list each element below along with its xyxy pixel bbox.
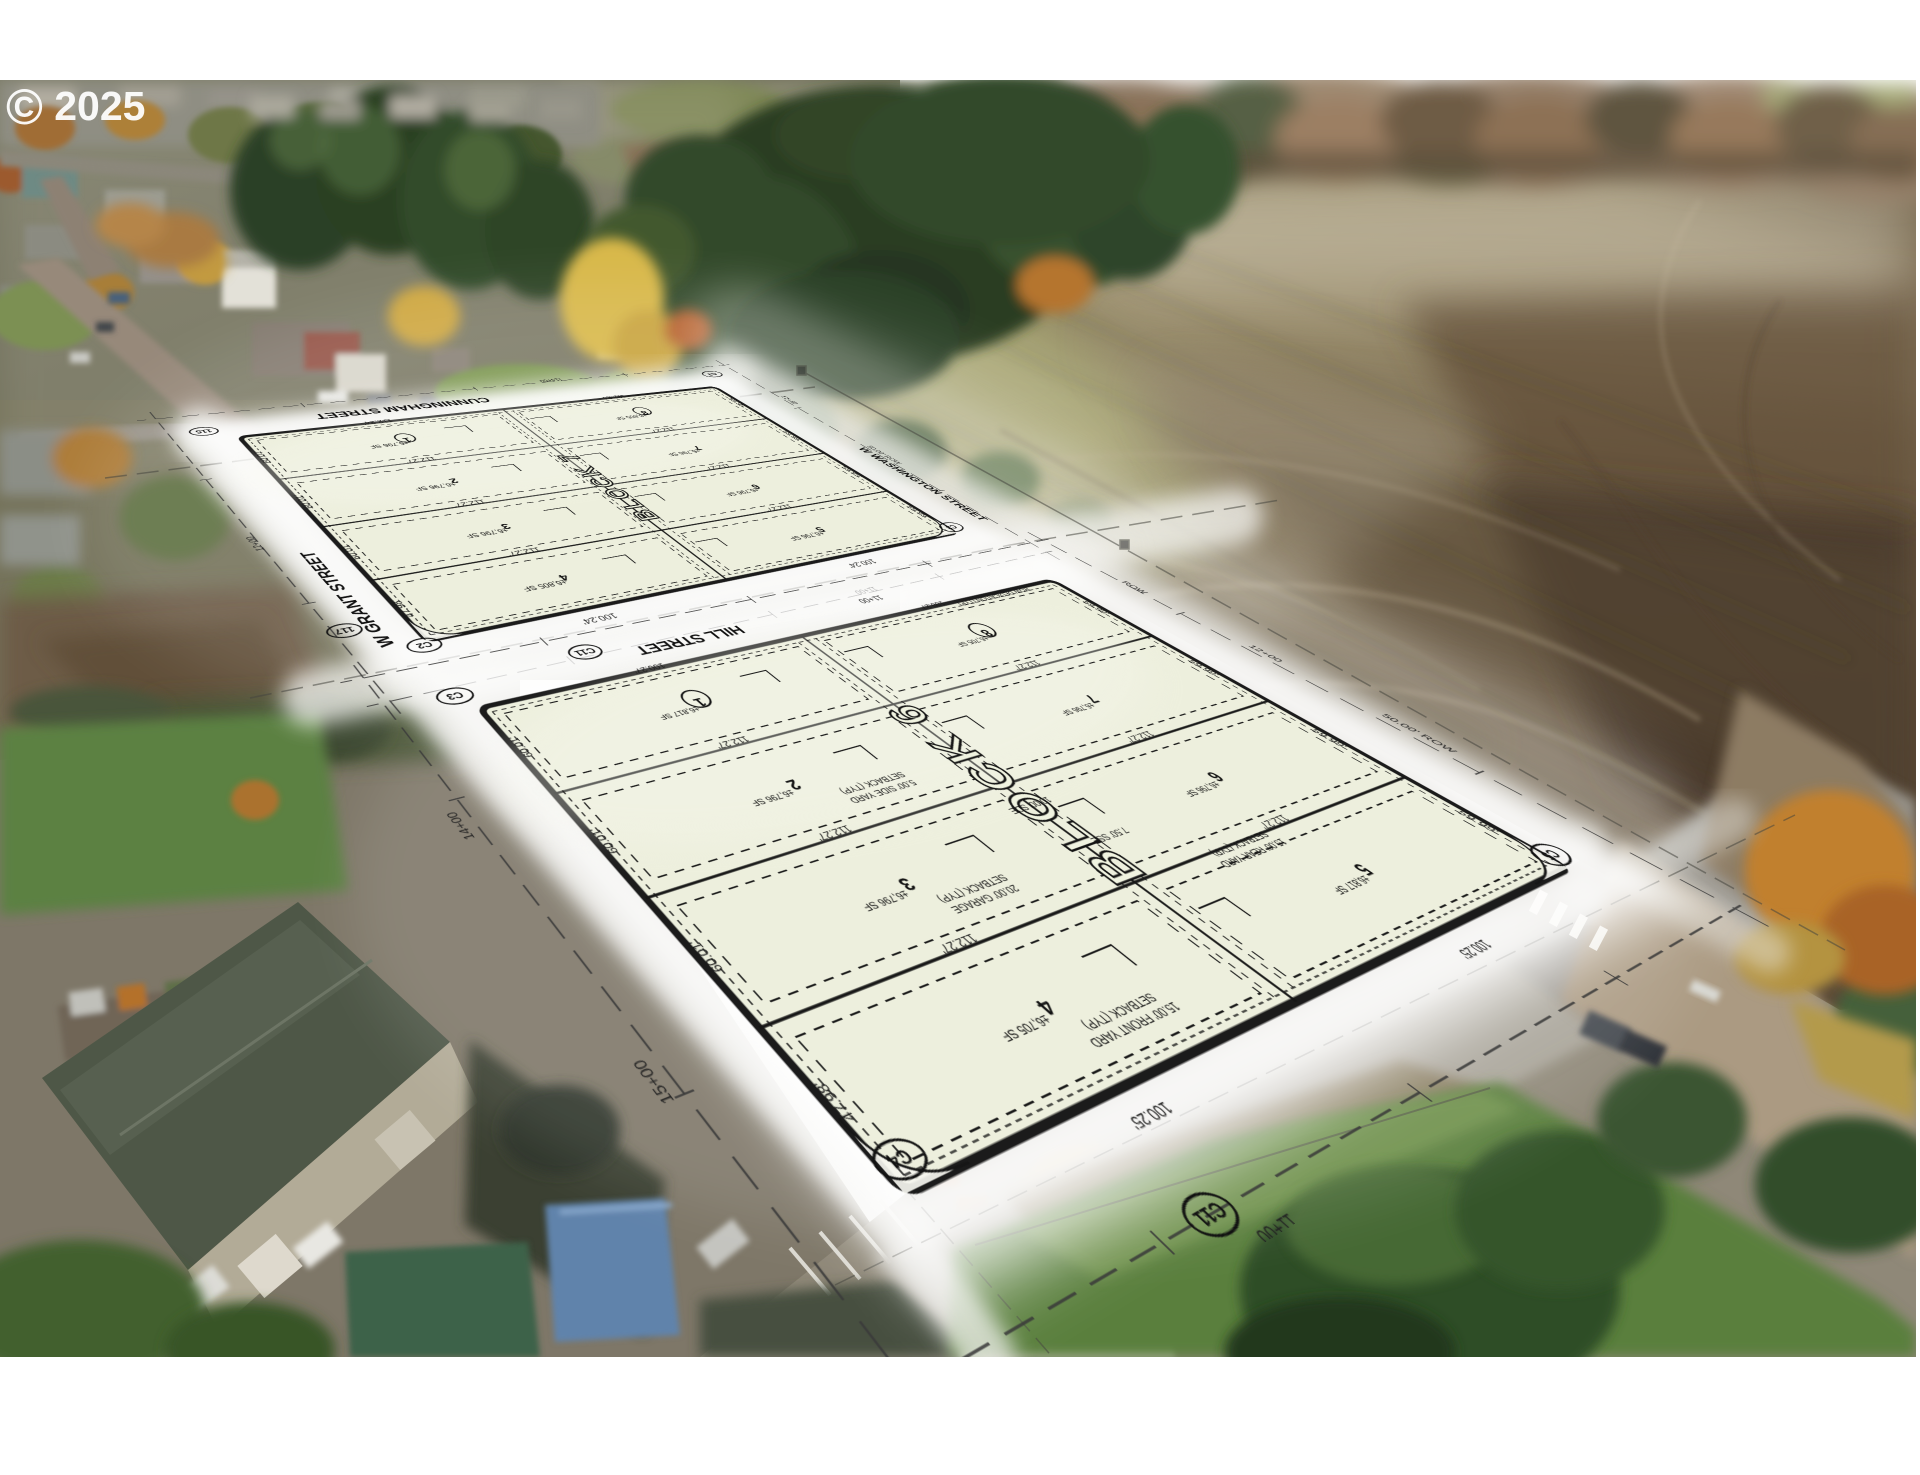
svg-text:12+00: 12+00	[243, 536, 268, 552]
svg-text:114+00: 114+00	[537, 377, 564, 383]
